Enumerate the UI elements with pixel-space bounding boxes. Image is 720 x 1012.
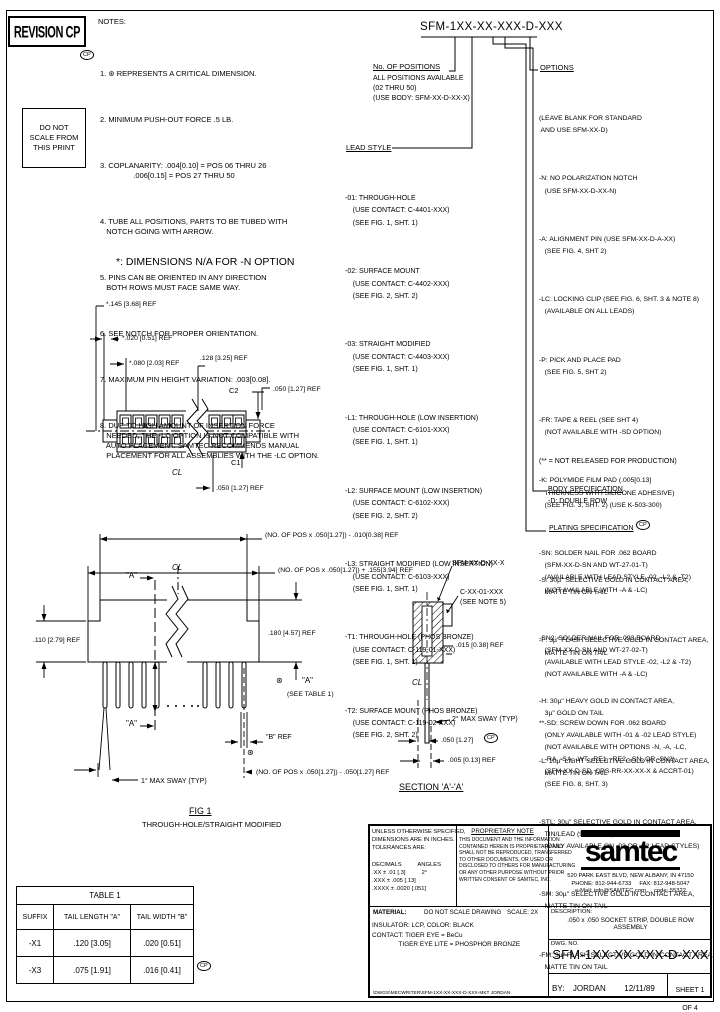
revision-cloud-plating: CP [636,520,650,530]
critical-dim-icon: ⊛ [276,676,283,685]
proprietary-text: THIS DOCUMENT AND THE INFORMATION CONTAI… [459,837,546,883]
dim-080: *.080 [2.03] REF [129,358,179,370]
lead-style-item: -L1: THROUGH-HOLE (LOW INSERTION) (USE C… [345,413,531,450]
scale-note: SCALE: 2X [507,909,538,916]
lead-style-item: -03: STRAIGHT MODIFIED (USE CONTACT: C-4… [345,339,531,376]
table1-suffix: -X1 [17,930,54,957]
section-body-pn: SFM-XX-D-XX-X [452,558,505,570]
description-block: DESCRIPTION: .050 x .050 SOCKET STRIP, D… [549,907,712,940]
title-block: UNLESS OTHERWISE SPECIFIED, DIMENSIONS A… [368,824,712,998]
table1-header: SUFFIX [17,905,54,930]
fig-dim-note: *: DIMENSIONS N/A FOR -N OPTION [116,256,295,268]
fig1-caption: FIG 1 [189,806,212,816]
plating-item: -S: 30µ" SELECTIVE GOLD IN CONTACT AREA,… [539,575,715,599]
label-c1: C1 [231,458,241,468]
table1-suffix: -X3 [17,957,54,984]
file-note: \DWGS\MECWRITER\SFM-1XX-XX-XXX-D-XXX-MKT… [373,991,510,996]
do-not-scale-box: DO NOT SCALE FROM THIS PRINT [22,108,86,168]
lead-style-item: -02: SURFACE MOUNT (USE CONTACT: C-4402-… [345,266,531,303]
plating-item: -H: 30µ" HEAVY GOLD IN CONTACT AREA, 3µ"… [539,696,715,720]
samtec-logo-block: samtec 520 PARK EAST BLVD, NEW ALBANY, I… [549,826,712,907]
note-item: 2. MINIMUM PUSH-OUT FORCE .5 LB. [100,115,338,125]
lead-style-list: -01: THROUGH-HOLE (USE CONTACT: C-4401-X… [345,157,531,779]
dim-width-plus: (NO. OF POS x .050[1.27]) + .155[3.94] R… [278,565,413,577]
note-item: 8. DUE TO HIGH AMOUNT OF INSERTION FORCE… [100,421,338,461]
option-item: -N: NO POLARIZATION NOTCH (USE SFM-XX-D-… [539,173,714,197]
revision-cloud-section: CP [484,733,498,743]
material-block: MATERIAL: DO NOT SCALE DRAWING SCALE: 2X… [370,907,549,998]
dim-005: .005 [0.13] REF [448,755,496,767]
see-table-note: (SEE TABLE 1) [287,689,334,701]
table-row: -X3 .075 [1.91] .016 [0.41] [17,957,194,984]
table1-tail-a: .075 [1.91] [54,957,131,984]
dim-180: .180 [4.57] REF [268,628,316,640]
table1-header: TAIL WIDTH "B" [131,905,194,930]
material-label: MATERIAL: [373,909,407,916]
tail-width-b: "B" REF [266,732,292,744]
dim-128: .128 [3.25] REF [200,353,248,365]
by-label: BY: [552,984,564,993]
section-cut-a-bottom: "A" [126,719,137,728]
label-c2: C2 [229,386,239,396]
dwg-no-value: SFM-1XX-XX-XXX-D-XXX [551,947,710,962]
positions-heading: No. OF POSITIONS [373,62,440,72]
lead-style-heading: LEAD STYLE [346,143,391,153]
revision-box: REVISION CP [8,16,86,47]
note-item: 3. COPLANARITY: .004[0.10] = POS 06 THRU… [100,161,338,181]
description-label: DESCRIPTION: [551,909,710,915]
dim-width-tails: (NO. OF POS x .050[1.27]) - .050[1.27] R… [256,767,389,779]
dim-020: *.020 [0.51] REF [122,333,172,345]
critical-dim-icon: ⊛ [247,748,254,757]
dim-110: .110 [2.79] REF [33,635,80,647]
proprietary-heading: PROPRIETARY NOTE [459,828,546,835]
fig-front-pins [103,662,246,708]
section-contact-note: (SEE NOTE 5) [460,597,506,609]
fig1-subcaption: THROUGH-HOLE/STRAIGHT MODIFIED [142,820,281,830]
fig-front-break [166,586,188,666]
do-not-scale-drawing: DO NOT SCALE DRAWING [424,909,501,916]
part-number-title: SFM-1XX-XX-XXX-D-XXX [420,21,563,33]
revision-label: REVISION CP [14,22,80,41]
dim-width-minus: (NO. OF POS x .050[1.27]) - .010[0.38] R… [265,530,398,542]
body-spec-heading: BODY SPECIFICATION [548,484,623,496]
dim-145: *.145 [3.68] REF [106,299,156,311]
plating-item: -L: 10µ" LIGHT SELECTIVE GOLD IN CONTACT… [539,756,715,780]
date-value: 12/11/89 [624,984,655,993]
note-item: 4. TUBE ALL POSITIONS, PARTS TO BE TUBED… [100,217,338,237]
drawn-by-block: BY: JORDAN 12/11/89 [549,974,668,996]
option-item: -P: PICK AND PLACE PAD (SEE FIG. 5, SHT … [539,355,714,379]
body-spec-value: -D: DOUBLE ROW [548,496,607,508]
plating-heading: PLATING SPECIFICATION [549,523,634,535]
revision-cloud-note2: CP [80,50,94,60]
samtec-logo-text: samtec [585,835,676,868]
option-item: -FR: TAPE & REEL (SEE SHT 4) (NOT AVAILA… [539,415,714,439]
sway-note: 1° MAX SWAY (TYP) [141,776,207,788]
tolerance-block: UNLESS OTHERWISE SPECIFIED, DIMENSIONS A… [370,826,457,907]
centerline-symbol: CL [172,468,182,477]
table1-tail-b: .016 [0.41] [131,957,194,984]
option-item: -A: ALIGNMENT PIN (USE SFM-XX-D-A-XX) (S… [539,234,714,258]
samtec-logo: samtec [581,830,680,870]
by-value: JORDAN [573,984,606,993]
note-item: 1. ⊛ REPRESENTS A CRITICAL DIMENSION. [100,69,338,79]
table1: TABLE 1 SUFFIX TAIL LENGTH "A" TAIL WIDT… [16,886,194,984]
do-not-scale-text: DO NOT SCALE FROM THIS PRINT [30,123,79,153]
sheet-block: SHEET 1 OF 4 [668,974,712,996]
lead-style-item: -L2: SURFACE MOUNT (LOW INSERTION) (USE … [345,486,531,523]
dim-050-top: .050 [1.27] REF [273,384,321,396]
table1-tail-a: .120 [3.05] [54,930,131,957]
notes-heading: NOTES: [98,17,126,27]
options-footnote: (** = NOT RELEASED FOR PRODUCTION) [539,456,677,468]
section-aa-caption: SECTION 'A'-'A' [399,782,463,792]
table-row: -X1 .120 [3.05] .020 [0.51] [17,930,194,957]
plating-item: -F: 3µ" FLASH SELECTIVE GOLD IN CONTACT … [539,635,715,659]
dwg-no-block: DWG. NO. SFM-1XX-XX-XXX-D-XXX [549,940,712,974]
table1-header: TAIL LENGTH "A" [54,905,131,930]
tail-length-a: "A" [302,676,313,685]
revision-cloud-table: CP [197,961,211,971]
centerline-symbol: CL [172,563,182,572]
positions-detail: ALL POSITIONS AVAILABLE (02 THRU 50) (US… [373,74,470,104]
proprietary-note-block: PROPRIETARY NOTE THIS DOCUMENT AND THE I… [457,826,549,907]
centerline-symbol: CL [412,678,422,687]
lead-style-item: -01: THROUGH-HOLE (USE CONTACT: C-4401-X… [345,193,531,230]
section-sway-note: 2° MAX SWAY (TYP) [452,714,518,726]
option-item: (LEAVE BLANK FOR STANDARD AND USE SFM-XX… [539,113,714,137]
dim-050-bottom: .050 [1.27] REF [216,483,264,495]
options-heading: OPTIONS [540,63,574,73]
material-text: INSULATOR: LCP, COLOR: BLACK CONTACT: TI… [372,921,546,950]
note-item: 5. PINS CAN BE ORIENTED IN ANY DIRECTION… [100,273,338,293]
table1-title: TABLE 1 [17,887,194,905]
table1-tail-b: .020 [0.51] [131,930,194,957]
samtec-address: 520 PARK EAST BLVD, NEW ALBANY, IN 47150… [549,873,712,896]
dim-050-section: .050 [1.27] [441,735,473,747]
drawing-sheet: REVISION CP DO NOT SCALE FROM THIS PRINT… [0,0,720,1012]
dim-015: .015 [0.38] REF [456,640,504,652]
description-text: .050 x .050 SOCKET STRIP, DOUBLE ROW ASS… [551,917,710,931]
tolerance-text: UNLESS OTHERWISE SPECIFIED, DIMENSIONS A… [372,828,454,894]
section-cut-a-top: "A" [126,571,137,580]
option-item: -LC: LOCKING CLIP (SEE FIG. 6, SHT. 3 & … [539,294,714,318]
